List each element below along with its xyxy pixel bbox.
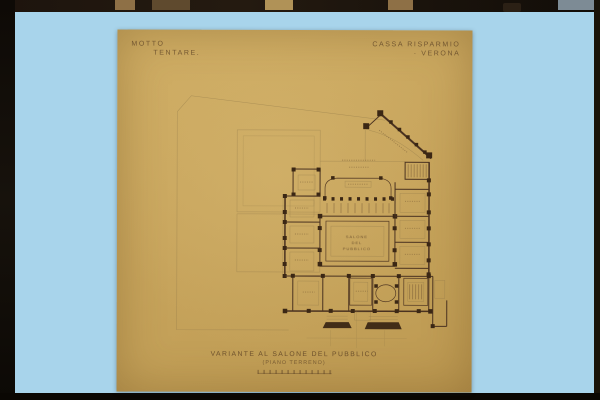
colonnade-row (323, 197, 394, 213)
film-edge-mark (503, 3, 521, 12)
film-edge-segment (152, 0, 190, 10)
drawing-sheet: MOTTO TENTARE. CASSA RISPARMIO · VERONA (117, 30, 473, 393)
top-wing (320, 130, 405, 167)
courtyard-pencil (237, 130, 320, 272)
entrance-vestibule (323, 176, 393, 200)
film-edge-segment (388, 0, 413, 10)
stair-room (405, 162, 429, 179)
entrance-steps (323, 312, 402, 329)
caption-block: VARIANTE AL SALONE DEL PUBBLICO (PIANO T… (117, 351, 472, 375)
hall-label: SALONE DEL PUBBLICO (322, 234, 392, 252)
left-wing (283, 194, 320, 278)
scale-bar (257, 370, 331, 374)
bottom-wing (283, 274, 433, 314)
room-top-left (292, 167, 321, 196)
film-edge-segment (115, 0, 135, 10)
floor-plan-drawing (117, 30, 473, 393)
film-edge-right (594, 0, 600, 400)
bottom-right-annex (431, 276, 447, 328)
slide-photo: MOTTO TENTARE. CASSA RISPARMIO · VERONA (0, 0, 600, 400)
film-edge-segment (265, 0, 293, 10)
film-edge-bottom (0, 393, 600, 400)
corner-rotunda (363, 110, 432, 160)
dimension-lines-pencil (307, 311, 407, 348)
caption-title: VARIANTE AL SALONE DEL PUBBLICO (117, 351, 472, 359)
caption-subtitle: (PIANO TERRENO) (117, 360, 472, 367)
film-edge-left (0, 0, 15, 400)
